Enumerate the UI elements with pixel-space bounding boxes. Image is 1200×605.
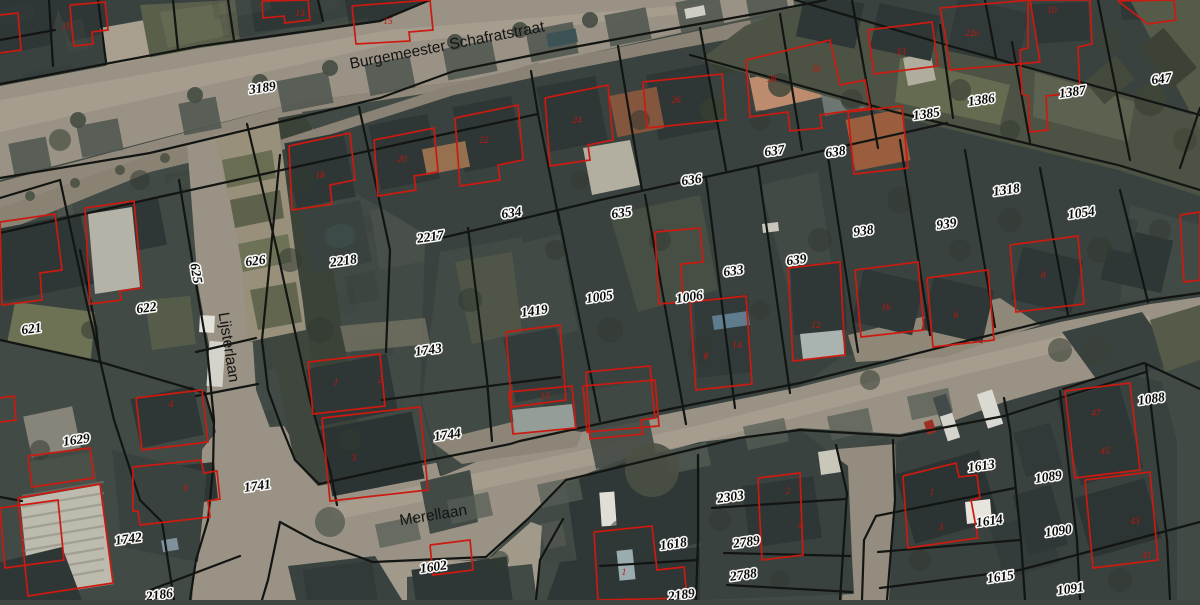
svg-text:4: 4: [169, 400, 174, 410]
svg-text:6: 6: [184, 484, 189, 494]
svg-text:26: 26: [671, 96, 681, 106]
svg-text:1: 1: [930, 488, 935, 498]
svg-text:622: 622: [135, 299, 157, 317]
svg-text:6: 6: [954, 311, 959, 321]
svg-text:10: 10: [1047, 6, 1057, 16]
svg-text:11: 11: [62, 22, 71, 32]
svg-text:639: 639: [785, 251, 807, 269]
svg-text:647: 647: [1150, 70, 1173, 88]
svg-text:47: 47: [1091, 409, 1102, 419]
svg-text:2: 2: [378, 376, 383, 386]
svg-text:1: 1: [622, 568, 627, 578]
svg-text:14: 14: [732, 341, 742, 351]
svg-text:22: 22: [479, 136, 489, 146]
svg-text:12: 12: [811, 321, 821, 331]
svg-text:18: 18: [315, 171, 325, 181]
svg-text:634: 634: [500, 204, 522, 222]
svg-text:28: 28: [767, 75, 777, 85]
svg-text:15: 15: [383, 17, 393, 27]
svg-text:16: 16: [881, 303, 891, 313]
svg-text:635: 635: [610, 204, 632, 222]
svg-text:636: 636: [680, 171, 702, 189]
svg-text:41: 41: [1142, 551, 1152, 561]
svg-text:24: 24: [572, 116, 582, 126]
svg-text:8: 8: [704, 352, 709, 362]
svg-text:3: 3: [351, 454, 357, 464]
svg-text:621: 621: [20, 320, 42, 338]
svg-text:638: 638: [824, 143, 846, 161]
svg-text:30: 30: [810, 65, 821, 75]
svg-text:633: 633: [722, 262, 744, 280]
svg-text:939: 939: [935, 215, 957, 233]
svg-text:637: 637: [763, 142, 786, 160]
svg-text:626: 626: [244, 252, 266, 270]
svg-text:45: 45: [1100, 447, 1110, 457]
svg-text:43: 43: [1130, 517, 1140, 527]
svg-text:1: 1: [334, 378, 339, 388]
svg-text:20: 20: [397, 155, 407, 165]
svg-text:2: 2: [786, 487, 791, 497]
svg-text:13: 13: [295, 9, 305, 19]
svg-text:22a: 22a: [965, 29, 980, 39]
svg-text:8: 8: [1041, 271, 1046, 281]
svg-text:3: 3: [938, 523, 944, 533]
svg-text:33: 33: [895, 48, 906, 58]
svg-text:10: 10: [540, 392, 550, 402]
svg-text:4: 4: [798, 521, 803, 531]
svg-text:938: 938: [852, 222, 874, 240]
